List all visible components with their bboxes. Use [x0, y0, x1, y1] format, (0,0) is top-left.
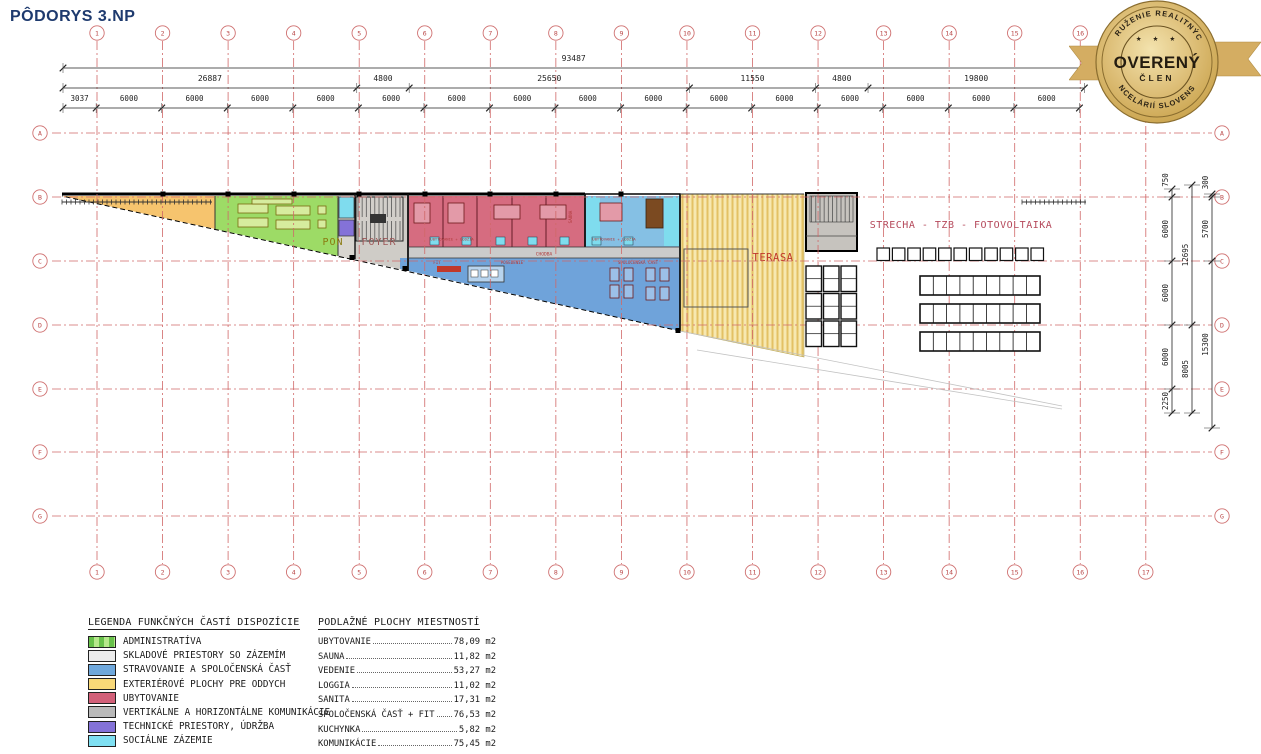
legend-item: SKLADOVÉ PRIESTORY SO ZÁZEMÍM	[88, 650, 323, 661]
area-row: LOGGIA11,02 m2	[318, 681, 496, 691]
shaft-tech-purple	[339, 220, 354, 236]
area-row: SPOLOČENSKÁ ČASŤ + FIT76,53 m2	[318, 710, 496, 720]
grid-bubble-label: F	[38, 448, 42, 456]
pv-square	[939, 248, 952, 261]
pv-square	[985, 248, 998, 261]
dim-label: 6000	[775, 94, 794, 103]
grid-bubble-label: D	[1220, 321, 1224, 329]
leader-dots	[357, 672, 452, 673]
area-room-name: KOMUNIKÁCIE	[318, 739, 376, 749]
badge-sub-text: ČLEN	[1139, 72, 1174, 83]
dim-label: 4800	[373, 74, 392, 83]
kitchen-units	[471, 270, 498, 277]
label-ubytovanie-1: UBYTOVANIE + LODŽIA	[430, 237, 474, 242]
pillar	[423, 192, 428, 197]
dim-label: 5700	[1201, 219, 1210, 238]
stair-core	[370, 214, 386, 223]
grid-bubble-label: F	[1220, 448, 1224, 456]
dim-label: 26887	[198, 74, 222, 83]
pillar	[292, 192, 297, 197]
bar-counter	[437, 266, 461, 272]
grid-bubble-label: 4	[292, 29, 296, 37]
pv-square	[877, 248, 890, 261]
grid-bubble-label: 1	[95, 568, 99, 576]
pillar	[403, 266, 408, 271]
dim-label: 2250	[1161, 391, 1170, 410]
grid-bubble-label: 8	[554, 29, 558, 37]
area-value: 76,53 m2	[454, 710, 496, 720]
area-room-name: VEDENIE	[318, 666, 355, 676]
grid-bubble-label: 2	[161, 29, 165, 37]
grid-bubble-label: 8	[554, 568, 558, 576]
legend-title: LEGENDA FUNKČNÝCH ČASTÍ DISPOZÍCIE	[88, 617, 300, 630]
dim-label: 3037	[71, 94, 89, 103]
badge-main-text: OVERENÝ	[1114, 53, 1201, 72]
leader-dots	[373, 643, 452, 644]
grid-bubble-label: 3	[226, 29, 230, 37]
pillar	[488, 192, 493, 197]
label-foyer: FOYER	[361, 237, 396, 248]
grid-bubble-label: 11	[749, 568, 757, 576]
dim-label: 6000	[185, 94, 204, 103]
grid-bubble-label: C	[1220, 257, 1224, 265]
legend-swatch	[88, 735, 116, 747]
label-chodba: CHODBA	[536, 252, 553, 258]
grid-bubble-label: 6	[423, 29, 427, 37]
legend-label: UBYTOVANIE	[123, 693, 179, 704]
pillar	[619, 192, 624, 197]
area-value: 75,45 m2	[454, 739, 496, 749]
dim-label: 15300	[1201, 333, 1210, 356]
dim-label: 6000	[1038, 94, 1057, 103]
legend-label: VERTIKÁLNE A HORIZONTÁLNE KOMUNIKÁCIE	[123, 707, 330, 718]
grid-bubble-label: C	[38, 257, 42, 265]
grid-bubble-label: 3	[226, 568, 230, 576]
dim-label: 6000	[448, 94, 467, 103]
grid-bubble-label: 7	[488, 568, 492, 576]
dim-label: 6000	[841, 94, 860, 103]
grid-bubble-label: A	[38, 129, 42, 137]
area-room-name: SANITA	[318, 695, 350, 705]
grid-bubble-label: 15	[1011, 568, 1019, 576]
grid-bubble-label: G	[38, 512, 42, 520]
grid-bubble-label: 2	[161, 568, 165, 576]
pv-square	[954, 248, 967, 261]
leader-dots	[362, 731, 457, 732]
pv-square	[1000, 248, 1013, 261]
leader-dots	[437, 716, 452, 717]
area-value: 78,09 m2	[454, 637, 496, 647]
legend-item: TECHNICKÉ PRIESTORY, ÚDRŽBA	[88, 721, 323, 732]
area-row: UBYTOVANIE78,09 m2	[318, 637, 496, 647]
dim-label: 8005	[1181, 360, 1190, 378]
area-value: 11,02 m2	[454, 681, 496, 691]
grid-bubble-label: 12	[814, 568, 822, 576]
grid-bubble-label: 14	[945, 29, 953, 37]
area-row: SANITA17,31 m2	[318, 695, 496, 705]
leader-dots	[352, 701, 452, 702]
pv-square	[923, 248, 936, 261]
dim-label: 6000	[1161, 219, 1170, 238]
area-table-title: PODLAŽNÉ PLOCHY MIESTNOSTÍ	[318, 617, 480, 630]
grid-bubble-label: B	[1220, 193, 1224, 201]
legend-item: STRAVOVANIE A SPOLOČENSKÁ ČASŤ	[88, 664, 323, 675]
sauna-room	[646, 199, 663, 228]
area-room-name: KUCHYNKA	[318, 725, 360, 735]
legend-swatch	[88, 678, 116, 690]
grid-bubble-label: D	[38, 321, 42, 329]
pv-strip	[920, 332, 1040, 351]
dim-label: 6000	[513, 94, 532, 103]
grid-bubble-label: 12	[814, 29, 822, 37]
dim-label: 6000	[317, 94, 336, 103]
grid-bubble-label: 13	[880, 568, 888, 576]
grid-bubble-label: 5	[357, 29, 361, 37]
dim-label: 4800	[832, 74, 851, 83]
dim-label: 6000	[251, 94, 270, 103]
dim-label: 11550	[740, 74, 764, 83]
grid-bubble-label: 10	[683, 568, 691, 576]
label-strecha: STRECHA - TZB - FOTOVOLTAIKA	[870, 220, 1053, 231]
grid-bubble-label: 9	[619, 568, 623, 576]
grid-bubble-label: B	[38, 193, 42, 201]
pillar	[357, 192, 362, 197]
legend-swatch	[88, 650, 116, 662]
area-row: KUCHYNKA5,82 m2	[318, 725, 496, 735]
pv-strip	[920, 276, 1040, 295]
legend-label: STRAVOVANIE A SPOLOČENSKÁ ČASŤ	[123, 664, 291, 675]
pv-strip	[920, 304, 1040, 323]
area-room-name: LOGGIA	[318, 681, 350, 691]
legend: LEGENDA FUNKČNÝCH ČASTÍ DISPOZÍCIE ADMIN…	[88, 610, 323, 750]
dim-label: 6000	[1161, 347, 1170, 366]
grid-bubble-label: E	[1220, 385, 1224, 393]
label-ubytovanie-2: UBYTOVANIE + LODŽIA	[592, 237, 636, 242]
legend-swatch	[88, 636, 116, 648]
dim-label: 6000	[907, 94, 926, 103]
grid-bubble-label: 10	[683, 29, 691, 37]
grid-bubble-label: G	[1220, 512, 1224, 520]
grid-bubble-label: 1	[95, 29, 99, 37]
area-value: 5,82 m2	[459, 725, 496, 735]
dim-label: 93487	[562, 54, 586, 63]
legend-swatch	[88, 664, 116, 676]
grid-bubble-label: 14	[945, 568, 953, 576]
grid-bubble-label: A	[1220, 129, 1224, 137]
legend-label: EXTERIÉROVÉ PLOCHY PRE ODDYCH	[123, 679, 285, 690]
dim-label: 6000	[710, 94, 729, 103]
legend-item: EXTERIÉROVÉ PLOCHY PRE ODDYCH	[88, 679, 323, 690]
legend-item: SOCIÁLNE ZÁZEMIE	[88, 735, 323, 746]
dim-label: 25650	[537, 74, 561, 83]
grid-bubble-label: 17	[1142, 568, 1150, 576]
area-value: 17,31 m2	[454, 695, 496, 705]
overeny-clen-badge: ZDRUŽENIE REALITNÝCH KANCELÁRIÍ SLOVENSK…	[1069, 0, 1261, 130]
grid-bubble-label: 9	[619, 29, 623, 37]
grid-bubble-label: E	[38, 385, 42, 393]
legend-swatch	[88, 692, 116, 704]
shaft-cyan	[339, 197, 354, 218]
dim-label: 6000	[972, 94, 991, 103]
legend-label: ADMINISTRATÍVA	[123, 636, 201, 647]
dim-label: 6000	[120, 94, 139, 103]
pv-square	[908, 248, 921, 261]
pv-square	[969, 248, 982, 261]
dim-label: 750	[1161, 173, 1170, 187]
wellness-cyan-b	[664, 197, 679, 246]
label-pon: PON	[322, 237, 343, 248]
grid-bubble-label: 13	[880, 29, 888, 37]
dim-label: 6000	[1161, 283, 1170, 302]
legend-label: SOCIÁLNE ZÁZEMIE	[123, 735, 213, 746]
dim-label: 19800	[964, 74, 988, 83]
area-row: SAUNA11,82 m2	[318, 652, 496, 662]
leader-dots	[352, 687, 452, 688]
area-value: 11,82 m2	[454, 652, 496, 662]
pillar	[161, 192, 166, 197]
legend-label: TECHNICKÉ PRIESTORY, ÚDRŽBA	[123, 721, 274, 732]
pv-square	[892, 248, 905, 261]
label-sauna: SAUNA	[568, 210, 573, 223]
pillar	[676, 328, 681, 333]
grid-bubble-label: 6	[423, 568, 427, 576]
dim-label: 6000	[579, 94, 598, 103]
badge-stars: ★ ★ ★	[1136, 34, 1178, 44]
stair-treads	[810, 196, 853, 222]
area-room-name: SPOLOČENSKÁ ČASŤ + FIT	[318, 710, 435, 720]
legend-item: UBYTOVANIE	[88, 693, 323, 704]
building-plan: PON FOYER TERASA STRECHA - TZB - FOTOVOL…	[62, 193, 1052, 357]
pillar	[554, 192, 559, 197]
dim-label: 12695	[1181, 244, 1190, 267]
legend-label: SKLADOVÉ PRIESTORY SO ZÁZEMÍM	[123, 650, 285, 661]
pillar	[350, 255, 355, 260]
zone-terasa	[680, 194, 804, 357]
area-room-name: SAUNA	[318, 652, 344, 662]
grid-bubble-label: 16	[1076, 568, 1084, 576]
grid-bubble-label: 11	[749, 29, 757, 37]
legend-swatch	[88, 706, 116, 718]
legend-swatch	[88, 721, 116, 733]
grid-bubble-label: 4	[292, 568, 296, 576]
area-row: KOMUNIKÁCIE75,45 m2	[318, 739, 496, 749]
dim-label: 300	[1201, 175, 1210, 189]
dim-label: 6000	[382, 94, 401, 103]
legend-item: VERTIKÁLNE A HORIZONTÁLNE KOMUNIKÁCIE	[88, 707, 323, 718]
grid-bubble-label: 7	[488, 29, 492, 37]
pv-square	[1016, 248, 1029, 261]
label-terasa: TERASA	[753, 252, 794, 264]
area-table: PODLAŽNÉ PLOCHY MIESTNOSTÍ UBYTOVANIE78,…	[318, 610, 496, 754]
pv-square	[1031, 248, 1044, 261]
grid-bubble-label: 15	[1011, 29, 1019, 37]
grid-bubble-label: 5	[357, 568, 361, 576]
legend-item: ADMINISTRATÍVA	[88, 636, 323, 647]
pillar	[226, 192, 231, 197]
leader-dots	[378, 745, 451, 746]
area-room-name: UBYTOVANIE	[318, 637, 371, 647]
dim-label: 6000	[644, 94, 663, 103]
leader-dots	[346, 658, 451, 659]
area-row: VEDENIE53,27 m2	[318, 666, 496, 676]
area-value: 53,27 m2	[454, 666, 496, 676]
